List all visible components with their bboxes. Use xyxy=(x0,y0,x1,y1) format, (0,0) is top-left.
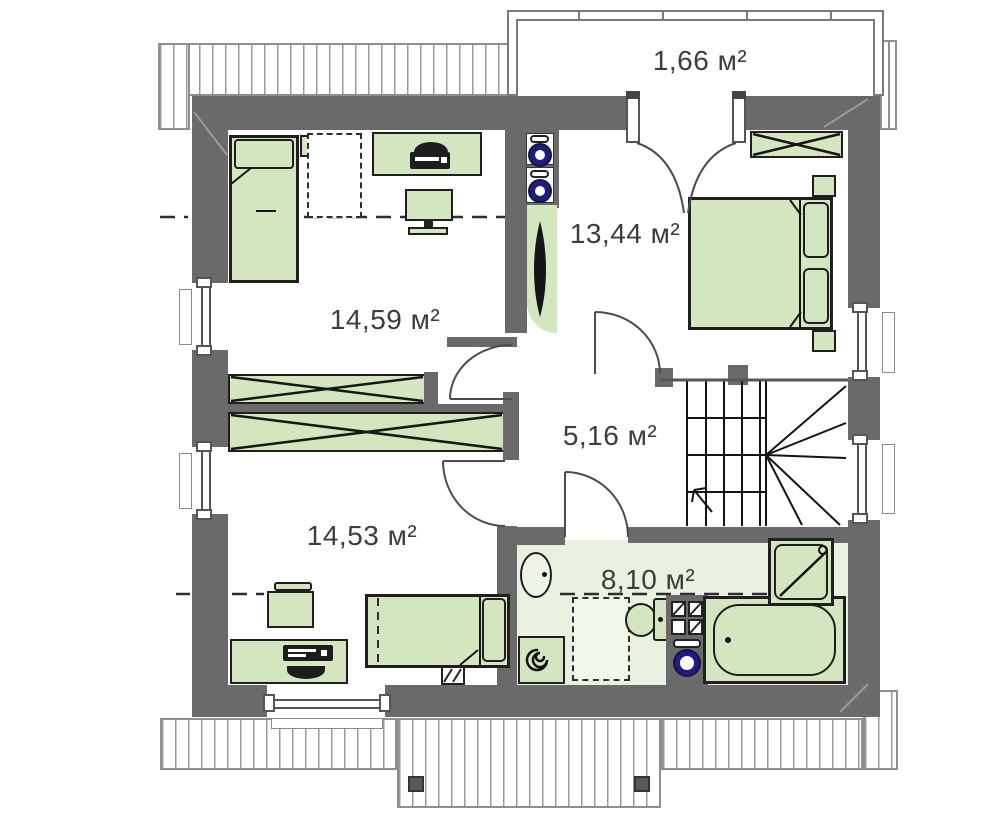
window-left-1-sill xyxy=(179,289,192,345)
window-bottom-sill xyxy=(271,718,383,729)
wall-top-left-seg xyxy=(192,96,627,130)
wall-right-upper xyxy=(848,130,880,308)
double-bed-pillow-2 xyxy=(803,268,829,324)
stair-newel-post xyxy=(728,365,748,385)
double-bed-pillow-1 xyxy=(803,202,829,258)
wall-right-mid xyxy=(848,377,880,440)
balcony-rail-tick-4 xyxy=(830,11,832,19)
chimney-bath-flue xyxy=(675,651,699,675)
window-left-2-sill xyxy=(179,453,192,509)
vent-shaft-2 xyxy=(688,601,703,617)
room-label-bathroom: 8,10 м² xyxy=(601,564,695,596)
wall-vent xyxy=(441,666,465,685)
window-right-1-glazing xyxy=(857,310,867,375)
wardrobe-separator xyxy=(228,404,507,412)
bathtub-drain xyxy=(725,637,731,643)
wall-top-right-seg xyxy=(745,96,880,130)
window-right-2-cap-top xyxy=(852,434,868,445)
window-left-1-glazing xyxy=(201,285,211,348)
skylight-bathroom xyxy=(572,597,630,681)
chimney-damper-1 xyxy=(530,135,549,143)
roof-hatch-bottom-right xyxy=(661,718,863,770)
window-right-1-sill xyxy=(882,312,895,373)
balcony-door-cap-left xyxy=(626,91,640,99)
window-right-1-cap-top xyxy=(852,302,868,313)
balcony-rail-tick-3 xyxy=(746,11,748,19)
plant-strip xyxy=(527,205,557,333)
wardrobe-lower-endpost xyxy=(503,392,519,460)
vent-shaft-3 xyxy=(671,619,686,635)
balcony-rail-tick-2 xyxy=(662,11,664,19)
window-bottom-cap-right xyxy=(379,694,391,712)
desk-top-left xyxy=(372,132,482,176)
tv-screen xyxy=(405,189,453,221)
balcony-door-jamb-left xyxy=(626,94,640,143)
wall-int-stub-a xyxy=(447,337,517,347)
window-left-1-cap-bot xyxy=(196,345,212,356)
window-right-2-glazing xyxy=(857,442,867,518)
chimney-flue-2 xyxy=(530,181,550,201)
chimney-bath-damper xyxy=(673,639,701,648)
nightstand-bedroom-top xyxy=(812,175,836,197)
water-heater xyxy=(518,636,565,684)
sink-drain xyxy=(542,572,547,577)
nightstand-bedroom-bottom xyxy=(812,330,836,352)
toilet-button xyxy=(658,617,663,622)
single-bed-bottom-pillow xyxy=(482,598,506,662)
window-bottom-cap-left xyxy=(263,694,275,712)
roof-chimney-cap-1 xyxy=(408,776,424,792)
sink xyxy=(520,552,552,598)
room-label-bottom-left: 14,53 м² xyxy=(307,520,417,552)
floor-plan: 1,66 м² 13,44 м² 14,59 м² 5,16 м² 14,53 … xyxy=(0,0,1000,822)
desk-bottom-left xyxy=(230,639,348,684)
window-left-2-glazing xyxy=(201,449,211,512)
single-bed-top-pillow xyxy=(234,139,294,169)
wardrobe-bedroom xyxy=(750,131,843,158)
room-label-hallway: 5,16 м² xyxy=(563,420,657,452)
wall-left-upper xyxy=(192,96,228,283)
wall-bottom-right-seg xyxy=(385,685,880,717)
window-right-2-cap-bot xyxy=(852,513,868,524)
chimney-flue-1 xyxy=(530,145,550,165)
chair-seat xyxy=(267,591,314,628)
wall-bottom-left-seg xyxy=(192,685,267,717)
roof-edge-right-line xyxy=(888,42,890,128)
room-label-top-left: 14,59 м² xyxy=(330,304,440,336)
balcony-rail-tick-1 xyxy=(578,11,580,19)
wall-left-mid xyxy=(192,350,228,447)
wardrobe-upper xyxy=(228,374,426,404)
window-bottom-glazing xyxy=(269,699,383,709)
room-label-bedroom: 13,44 м² xyxy=(570,218,680,250)
roof-hatch-top-left-tab xyxy=(158,43,190,130)
wardrobe-lower xyxy=(228,412,505,452)
roof-chimney-cap-2 xyxy=(634,776,650,792)
shower-tray xyxy=(774,544,828,600)
skylight-top-left xyxy=(307,133,362,218)
vent-shaft-1 xyxy=(671,601,686,617)
roof-hatch-bottom-mid xyxy=(397,718,661,808)
balcony-door-cap-right xyxy=(732,91,746,99)
balcony-door-jamb-right xyxy=(732,94,746,143)
chimney-damper-2 xyxy=(530,170,549,178)
wall-right-lower xyxy=(848,520,880,685)
window-left-2-cap-top xyxy=(196,441,212,452)
vent-shaft-4 xyxy=(688,619,703,635)
room-label-balcony: 1,66 м² xyxy=(653,45,747,77)
window-left-1-cap-top xyxy=(196,277,212,288)
stair-jamb-post xyxy=(655,368,673,387)
wardrobe-upper-endpost xyxy=(424,372,438,406)
window-left-2-cap-bot xyxy=(196,509,212,520)
chair-backrest xyxy=(274,582,312,591)
tv-stand xyxy=(408,227,448,235)
window-right-1-cap-bot xyxy=(852,370,868,381)
bathtub-basin xyxy=(713,604,836,676)
window-right-2-sill xyxy=(882,444,895,514)
